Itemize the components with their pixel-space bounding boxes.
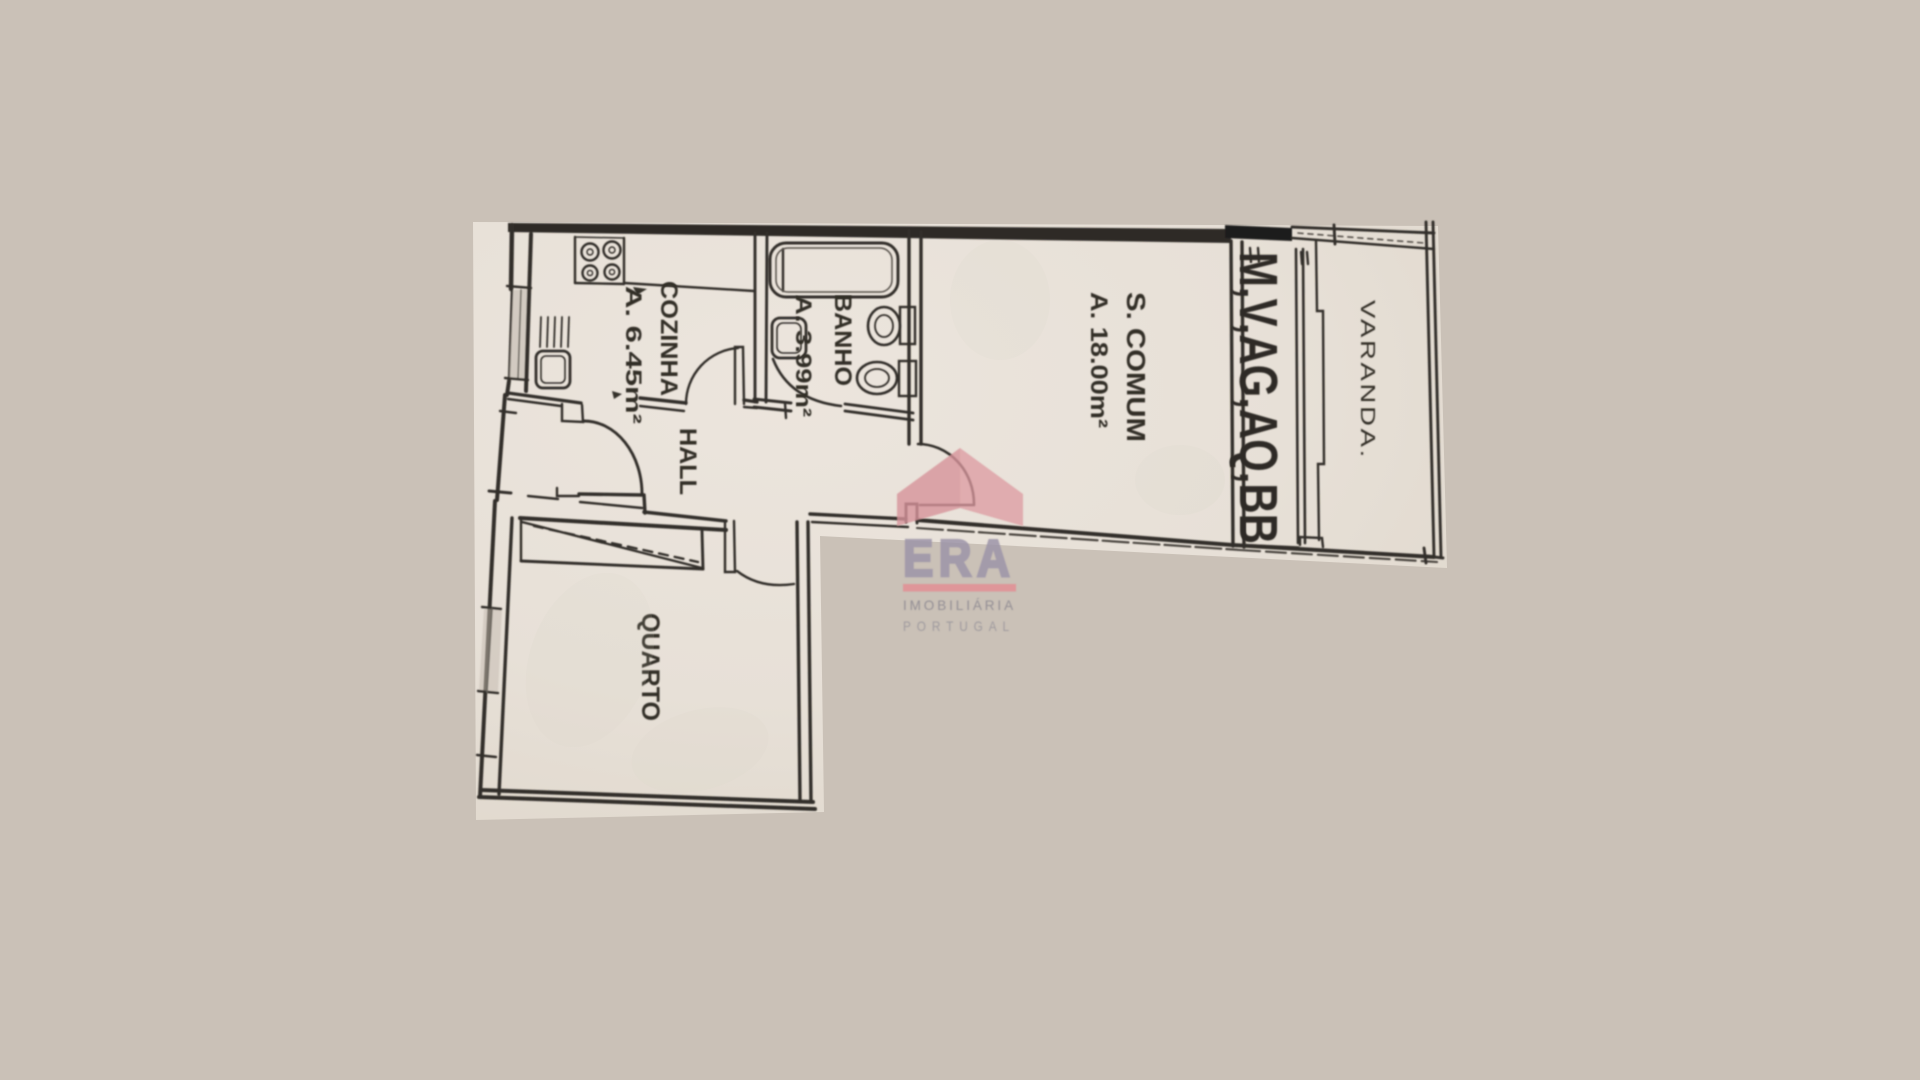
svg-text:IMOBILIÁRIA: IMOBILIÁRIA <box>903 597 1016 613</box>
svg-text:COZINHA: COZINHA <box>655 281 682 396</box>
svg-text:S. COMUM: S. COMUM <box>1121 292 1151 442</box>
svg-text:ERA: ERA <box>903 530 1015 588</box>
svg-text:A. 3.99m²: A. 3.99m² <box>791 295 816 417</box>
svg-text:M,V,AG,AQ,BB: M,V,AG,AQ,BB <box>1228 252 1288 544</box>
svg-text:HALL: HALL <box>674 428 701 495</box>
svg-text:PORTUGAL: PORTUGAL <box>903 618 1015 634</box>
svg-text:A. 6.45m²: A. 6.45m² <box>621 286 646 424</box>
svg-text:VARANDA.: VARANDA. <box>1356 300 1378 460</box>
svg-text:BANHO: BANHO <box>829 294 856 386</box>
svg-text:A. 18.00m²: A. 18.00m² <box>1085 292 1112 428</box>
